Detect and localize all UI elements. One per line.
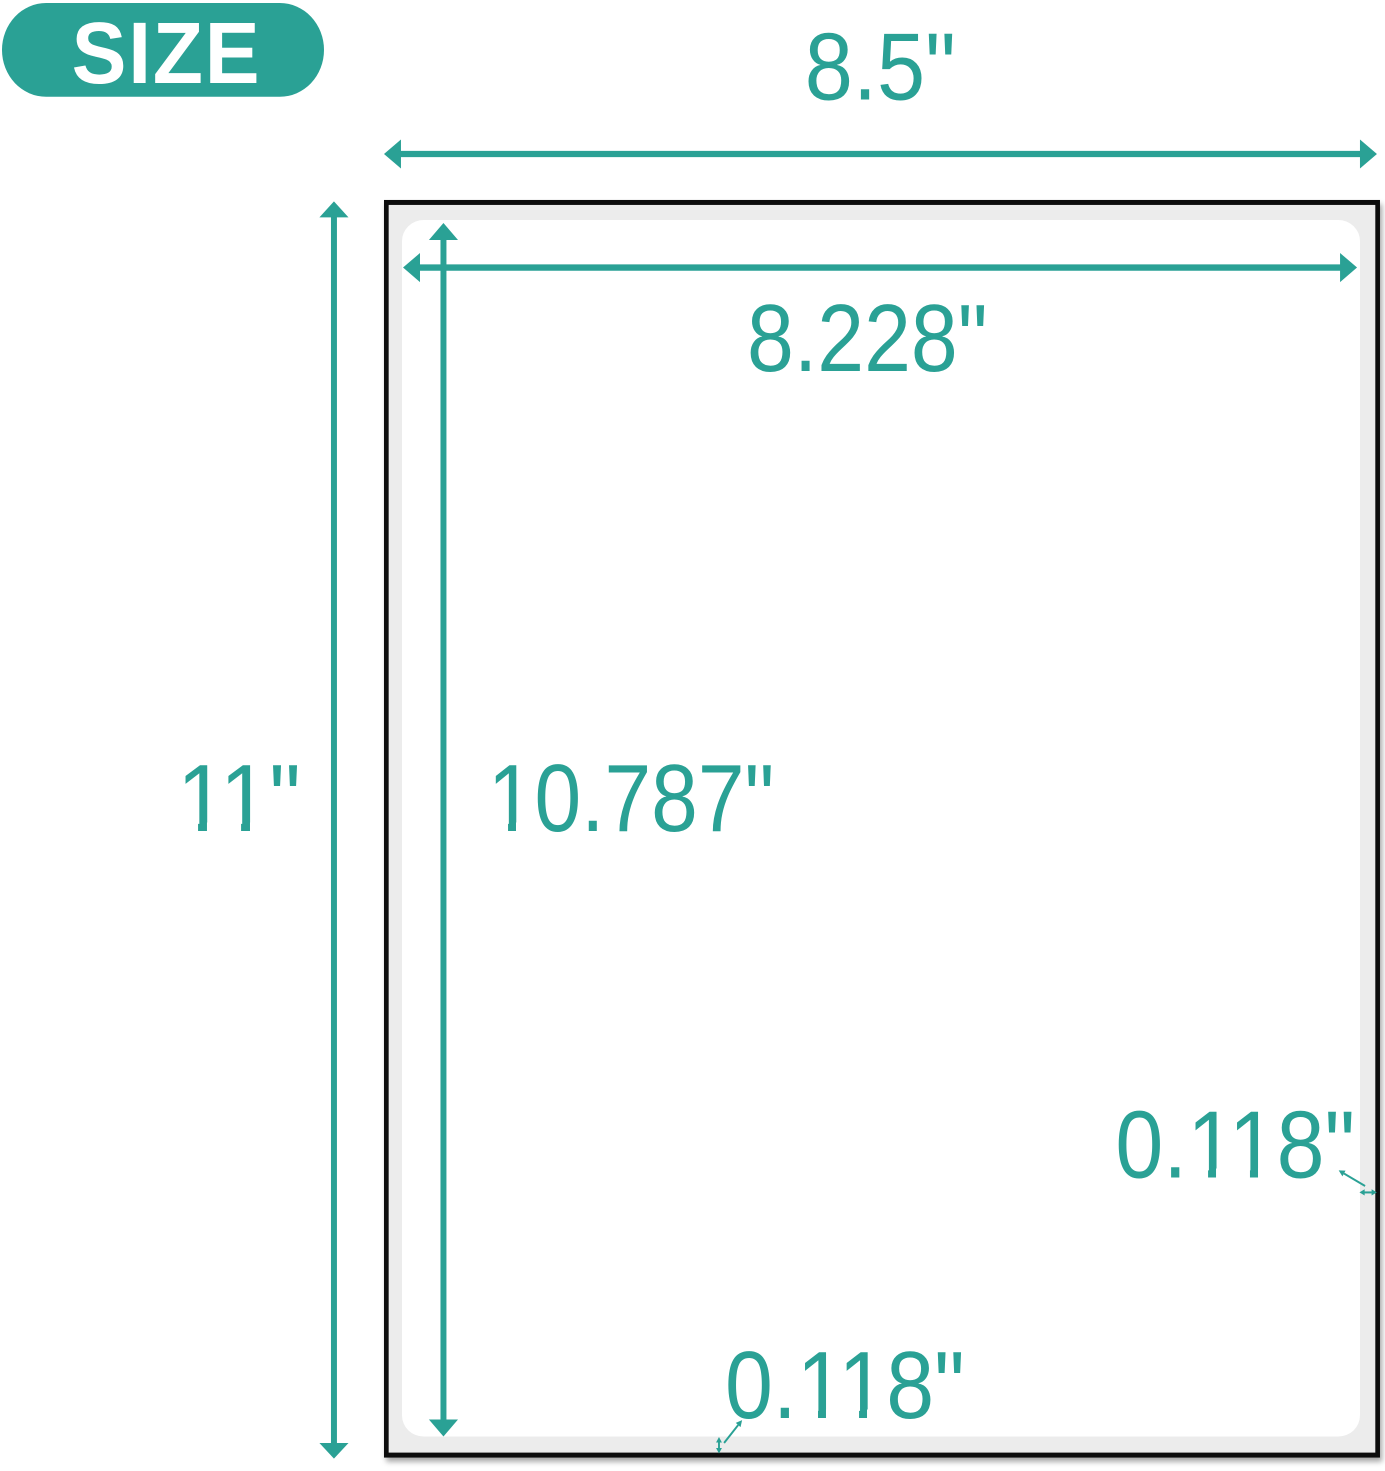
svg-text:8.228": 8.228": [747, 284, 988, 391]
svg-text:10.787": 10.787": [488, 745, 775, 852]
svg-text:11": 11": [177, 745, 301, 852]
svg-text:0.118": 0.118": [725, 1332, 965, 1439]
svg-text:8.5": 8.5": [805, 13, 956, 120]
svg-text:0.118": 0.118": [1115, 1091, 1355, 1198]
svg-text:SIZE: SIZE: [72, 4, 262, 102]
